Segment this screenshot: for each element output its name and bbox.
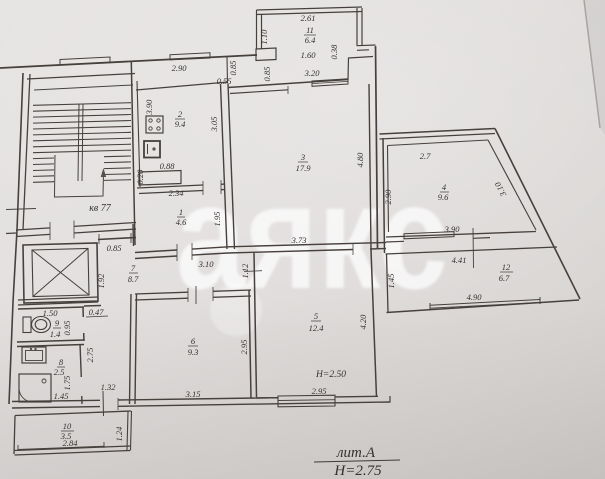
svg-text:8.7: 8.7	[128, 274, 139, 284]
svg-text:0.20: 0.20	[135, 169, 145, 185]
svg-text:2.90: 2.90	[383, 189, 393, 205]
svg-text:2: 2	[178, 109, 183, 119]
svg-text:1.95: 1.95	[212, 212, 222, 227]
svg-text:1.50: 1.50	[43, 308, 59, 318]
svg-text:4.6: 4.6	[176, 217, 187, 227]
svg-text:2.84: 2.84	[63, 438, 79, 448]
svg-text:0.85: 0.85	[228, 61, 238, 76]
svg-text:H=2.50: H=2.50	[315, 370, 346, 380]
svg-text:1.45: 1.45	[54, 391, 69, 401]
svg-text:1: 1	[179, 207, 183, 217]
svg-text:2.34: 2.34	[169, 188, 185, 198]
svg-text:0.85: 0.85	[262, 67, 272, 82]
svg-text:4.80: 4.80	[355, 152, 365, 168]
svg-text:2.90: 2.90	[172, 63, 188, 73]
svg-text:4.20: 4.20	[358, 314, 368, 330]
svg-text:4.90: 4.90	[467, 292, 483, 302]
svg-text:6: 6	[191, 336, 196, 346]
svg-text:1.12: 1.12	[240, 263, 250, 279]
svg-text:10: 10	[63, 421, 72, 431]
svg-text:3.90: 3.90	[444, 224, 461, 234]
svg-text:3.10: 3.10	[492, 180, 509, 199]
svg-text:17.9: 17.9	[296, 163, 312, 173]
svg-text:0.47: 0.47	[89, 307, 105, 317]
svg-text:2.75: 2.75	[85, 348, 95, 363]
svg-text:0.85: 0.85	[107, 243, 122, 253]
svg-text:3.90: 3.90	[144, 99, 154, 116]
svg-text:7: 7	[131, 263, 136, 273]
svg-text:3.20: 3.20	[304, 68, 321, 78]
svg-text:0.55: 0.55	[217, 76, 232, 86]
svg-text:2.95: 2.95	[239, 340, 249, 355]
svg-text:3.73: 3.73	[291, 235, 307, 245]
svg-text:11: 11	[306, 25, 314, 35]
svg-text:6.7: 6.7	[499, 273, 510, 283]
svg-text:12: 12	[502, 262, 511, 272]
svg-text:3: 3	[300, 152, 305, 162]
svg-text:12.4: 12.4	[309, 323, 325, 333]
svg-text:H=2.75: H=2.75	[333, 463, 382, 479]
svg-text:9.6: 9.6	[438, 192, 449, 202]
svg-text:1.10: 1.10	[259, 29, 269, 45]
svg-text:1.75: 1.75	[62, 376, 72, 391]
svg-text:2.95: 2.95	[312, 386, 327, 396]
svg-text:0.38: 0.38	[329, 44, 339, 60]
svg-text:1.92: 1.92	[96, 273, 106, 289]
svg-text:0.88: 0.88	[160, 161, 176, 171]
svg-text:2.61: 2.61	[301, 13, 316, 23]
svg-text:лит.А: лит.А	[336, 445, 376, 461]
svg-text:1.32: 1.32	[101, 382, 117, 392]
svg-text:0.95: 0.95	[62, 321, 72, 336]
svg-text:3.05: 3.05	[209, 117, 219, 133]
svg-text:1.4: 1.4	[50, 329, 61, 339]
svg-text:6.4: 6.4	[305, 35, 316, 45]
svg-text:2.5: 2.5	[54, 367, 65, 377]
svg-text:4.41: 4.41	[452, 255, 467, 265]
svg-text:1.24: 1.24	[114, 426, 124, 442]
svg-text:1.60: 1.60	[301, 50, 317, 60]
svg-text:3.10: 3.10	[198, 259, 215, 269]
svg-text:кв 77: кв 77	[89, 203, 112, 214]
svg-text:9: 9	[55, 318, 60, 328]
svg-text:1.45: 1.45	[386, 274, 396, 289]
svg-text:9.3: 9.3	[188, 347, 199, 357]
svg-text:5: 5	[314, 311, 318, 321]
svg-text:8: 8	[59, 357, 64, 367]
svg-text:3.15: 3.15	[185, 389, 201, 399]
svg-text:2.7: 2.7	[420, 151, 431, 161]
svg-text:9.4: 9.4	[175, 119, 186, 129]
